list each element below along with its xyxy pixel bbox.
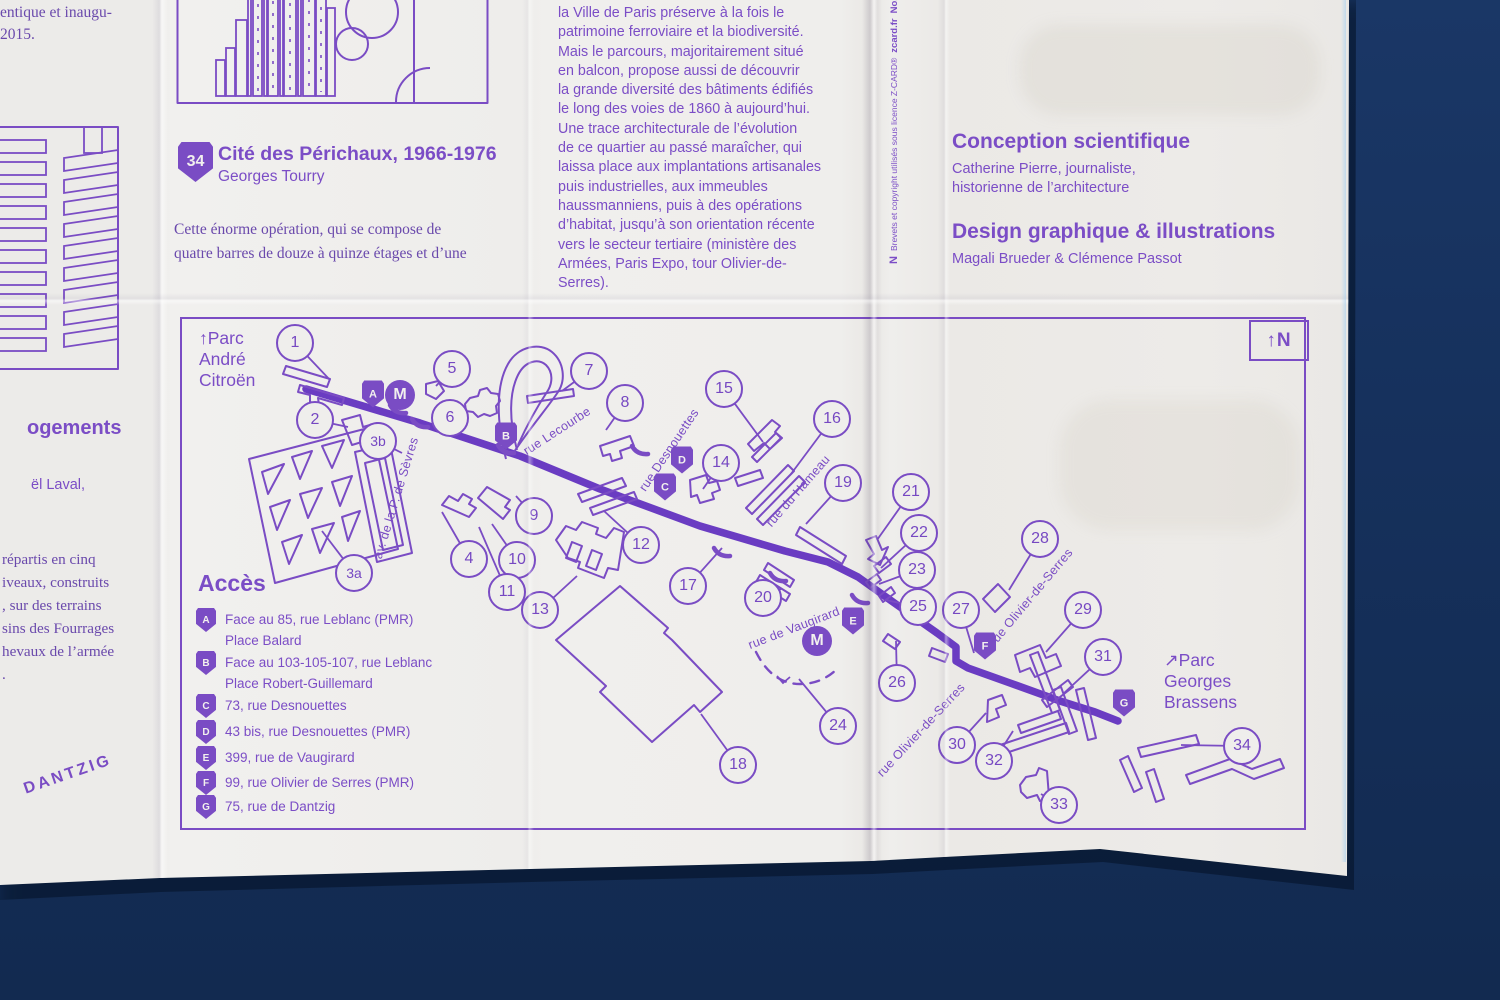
zcard-license-line: N Brevets et copyright utilisés sous lic… bbox=[886, 12, 902, 264]
left-paragraph-fragment: répartis en cinq iveaux, construits , su… bbox=[2, 548, 114, 686]
zcard-site: zcard.fr bbox=[889, 18, 900, 52]
building-illustration-top bbox=[178, 0, 488, 103]
zcard-number: No. 126639/12 bbox=[889, 0, 900, 13]
credits-science: Conception scientifique Catherine Pierre… bbox=[952, 130, 1190, 198]
acces-item-F: F99, rue Olivier de Serres (PMR) bbox=[196, 771, 414, 795]
poi-description: Cette énorme opération, qui se compose d… bbox=[174, 218, 514, 266]
acces-shield-F: F bbox=[196, 771, 216, 795]
map-marker-13: 13 bbox=[521, 591, 559, 629]
fold-crease bbox=[152, 0, 168, 1000]
map-marker-32: 32 bbox=[975, 742, 1013, 780]
acces-text: Face au 85, rue Leblanc (PMR) Place Bala… bbox=[225, 608, 413, 651]
poi-34-badge: 34 bbox=[178, 142, 213, 182]
fold-crease-horizontal bbox=[0, 293, 1500, 305]
zcard-logo: N bbox=[888, 256, 900, 264]
map-marker-16: 16 bbox=[813, 400, 851, 438]
map-marker-2: 2 bbox=[296, 401, 334, 439]
metro-icon: M bbox=[385, 380, 415, 410]
paper-edge-highlight bbox=[1341, 0, 1346, 862]
map-marker-9: 9 bbox=[515, 497, 553, 535]
map-marker-3b: 3b bbox=[359, 422, 397, 460]
map-marker-17: 17 bbox=[669, 567, 707, 605]
map-marker-27: 27 bbox=[942, 591, 980, 629]
left-subline-fragment: ël Laval, bbox=[31, 477, 85, 493]
acces-text: 99, rue Olivier de Serres (PMR) bbox=[225, 771, 414, 793]
acces-text: Face au 103-105-107, rue Leblanc Place R… bbox=[225, 651, 432, 694]
map-marker-33: 33 bbox=[1040, 786, 1078, 824]
building-illustration-left bbox=[0, 127, 118, 369]
credits-design-body: Magali Brueder & Clémence Passot bbox=[952, 250, 1275, 269]
map-marker-23: 23 bbox=[898, 551, 936, 589]
acces-item-A: AFace au 85, rue Leblanc (PMR) Place Bal… bbox=[196, 608, 413, 651]
map-marker-15: 15 bbox=[705, 370, 743, 408]
photographed-map: ↑N ↑Parc André Citroën ↗Parc Georges Bra… bbox=[0, 0, 1500, 1000]
paper-sheet: ↑N ↑Parc André Citroën ↗Parc Georges Bra… bbox=[0, 0, 1500, 1000]
map-marker-24: 24 bbox=[819, 707, 857, 745]
map-marker-31: 31 bbox=[1084, 638, 1122, 676]
credits-science-body: Catherine Pierre, journaliste, historien… bbox=[952, 160, 1190, 198]
acces-item-D: D43 bis, rue Desnouettes (PMR) bbox=[196, 720, 410, 744]
acces-text: 75, rue de Dantzig bbox=[225, 795, 335, 817]
north-arrow-icon: ↑N bbox=[1266, 330, 1291, 352]
map-marker-11: 11 bbox=[488, 573, 526, 611]
metro-icon: M bbox=[802, 626, 832, 656]
acces-text: 43 bis, rue Desnouettes (PMR) bbox=[225, 720, 410, 742]
dantzig-street-label: DANTZIG bbox=[22, 751, 115, 798]
acces-text: 73, rue Desnouettes bbox=[225, 694, 347, 716]
map-marker-8: 8 bbox=[606, 384, 644, 422]
poi-title: Cité des Périchaux, 1966-1976 bbox=[218, 143, 497, 166]
map-marker-29: 29 bbox=[1064, 591, 1102, 629]
zcard-license-text: Brevets et copyright utilisés sous licen… bbox=[889, 58, 899, 251]
acces-shield-E: E bbox=[196, 746, 216, 770]
map-marker-26: 26 bbox=[878, 664, 916, 702]
cut-paragraph-fragment: entique et inaugu- 2015. bbox=[0, 2, 112, 46]
intro-paragraph: la Ville de Paris préserve à la fois le … bbox=[558, 4, 888, 293]
map-marker-19: 19 bbox=[824, 464, 862, 502]
map-marker-7: 7 bbox=[570, 352, 608, 390]
map-marker-1: 1 bbox=[276, 324, 314, 362]
map-marker-22: 22 bbox=[900, 514, 938, 552]
parc-georges-brassens-label: ↗Parc Georges Brassens bbox=[1164, 650, 1237, 713]
acces-legend-title: Accès bbox=[198, 570, 266, 597]
acces-shield-D: D bbox=[196, 720, 216, 744]
poi-architect: Georges Tourry bbox=[218, 168, 325, 186]
acces-shield-G: G bbox=[196, 795, 216, 819]
acces-shield-A: A bbox=[196, 608, 216, 632]
map-marker-6: 6 bbox=[431, 399, 469, 437]
map-marker-20: 20 bbox=[744, 579, 782, 617]
acces-item-G: G75, rue de Dantzig bbox=[196, 795, 335, 819]
map-marker-34: 34 bbox=[1223, 727, 1261, 765]
north-compass: ↑N bbox=[1249, 320, 1309, 361]
credits-design-title: Design graphique & illustrations bbox=[952, 220, 1275, 244]
parc-andre-citroen-label: ↑Parc André Citroën bbox=[199, 328, 255, 391]
map-marker-30: 30 bbox=[938, 726, 976, 764]
map-marker-18: 18 bbox=[719, 746, 757, 784]
map-marker-21: 21 bbox=[892, 473, 930, 511]
acces-item-E: E399, rue de Vaugirard bbox=[196, 746, 355, 770]
credits-design: Design graphique & illustrations Magali … bbox=[952, 220, 1275, 269]
map-marker-14: 14 bbox=[702, 444, 740, 482]
print-showthrough bbox=[1020, 25, 1320, 115]
left-heading-fragment: ogements bbox=[27, 417, 121, 440]
map-marker-12: 12 bbox=[622, 526, 660, 564]
acces-item-C: C73, rue Desnouettes bbox=[196, 694, 347, 718]
acces-text: 399, rue de Vaugirard bbox=[225, 746, 355, 768]
map-marker-5: 5 bbox=[433, 350, 471, 388]
map-marker-28: 28 bbox=[1021, 520, 1059, 558]
credits-science-title: Conception scientifique bbox=[952, 130, 1190, 154]
acces-item-B: BFace au 103-105-107, rue Leblanc Place … bbox=[196, 651, 432, 694]
acces-shield-B: B bbox=[196, 651, 216, 675]
acces-shield-C: C bbox=[196, 694, 216, 718]
map-marker-3a: 3a bbox=[335, 554, 373, 592]
map-marker-25: 25 bbox=[899, 588, 937, 626]
map-marker-4: 4 bbox=[450, 540, 488, 578]
